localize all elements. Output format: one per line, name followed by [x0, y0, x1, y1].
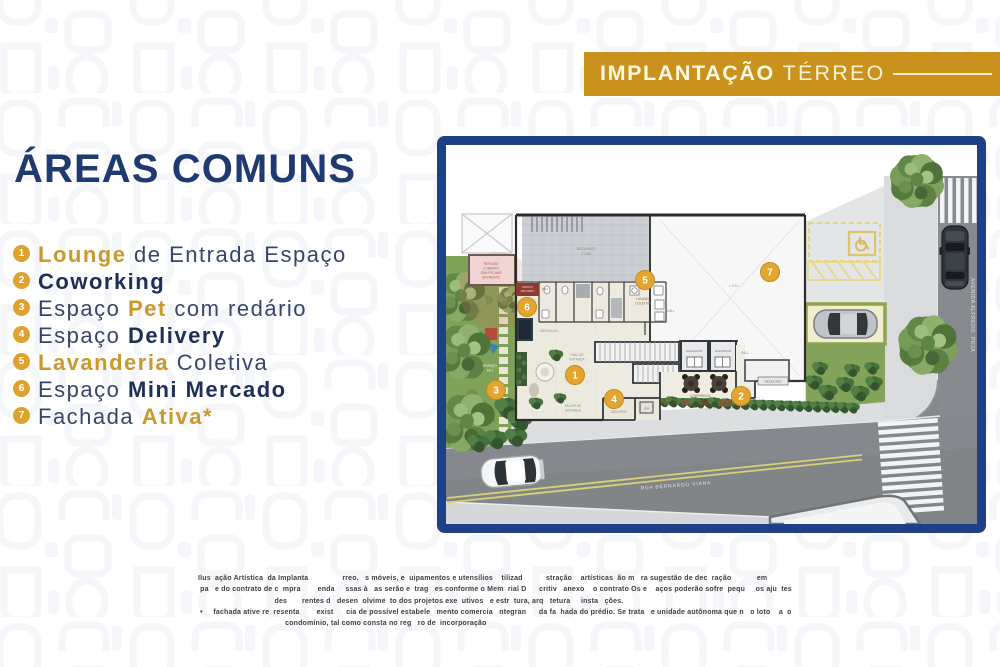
- svg-text:PET: PET: [542, 287, 548, 291]
- svg-text:HALL: HALL: [667, 309, 675, 313]
- svg-text:COWORKING: COWORKING: [690, 394, 711, 398]
- svg-text:DELIVERY: DELIVERY: [611, 410, 628, 414]
- svg-text:LAVAND.: LAVAND.: [636, 297, 649, 301]
- svg-text:4: 4: [611, 395, 617, 406]
- svg-text:5: 5: [642, 276, 648, 287]
- svg-text:PET: PET: [487, 369, 494, 373]
- svg-text:COBERTO: COBERTO: [483, 267, 499, 271]
- svg-text:SEM FECHAR: SEM FECHAR: [481, 271, 503, 275]
- svg-text:ESPAÇO: ESPAÇO: [522, 285, 533, 289]
- svg-text:CLUB: CLUB: [581, 252, 591, 256]
- svg-text:MEZANINO: MEZANINO: [577, 247, 596, 251]
- svg-text:PALIER DE: PALIER DE: [565, 404, 581, 408]
- svg-text:AVENIDA ALFREDO. PUJA: AVENIDA ALFREDO. PUJA: [969, 278, 975, 352]
- svg-text:REFUGIO: REFUGIO: [484, 262, 499, 266]
- svg-text:7: 7: [767, 268, 773, 279]
- svg-text:COLETIVA: COLETIVA: [635, 302, 651, 306]
- svg-text:SPA: SPA: [644, 407, 650, 411]
- svg-text:LOJA: LOJA: [729, 284, 739, 288]
- svg-text:3: 3: [493, 386, 499, 397]
- svg-text:1: 1: [572, 371, 578, 382]
- svg-text:ESPAÇO: ESPAÇO: [483, 364, 497, 368]
- svg-text:HALL DE: HALL DE: [570, 353, 583, 357]
- svg-text:ENTRADA: ENTRADA: [569, 358, 585, 362]
- svg-text:SA FRENTE: SA FRENTE: [482, 276, 500, 280]
- svg-text:ELEVADOR: ELEVADOR: [715, 349, 732, 353]
- svg-text:ELEVADOR: ELEVADOR: [686, 349, 703, 353]
- svg-text:MERCADO: MERCADO: [540, 329, 558, 333]
- svg-text:ENTRADA: ENTRADA: [565, 409, 581, 413]
- svg-text:HALL: HALL: [741, 351, 749, 355]
- svg-text:2: 2: [738, 392, 744, 403]
- svg-text:MINI MERC: MINI MERC: [521, 289, 535, 293]
- svg-text:6: 6: [524, 303, 530, 314]
- svg-text:MEDIDORES: MEDIDORES: [765, 380, 782, 384]
